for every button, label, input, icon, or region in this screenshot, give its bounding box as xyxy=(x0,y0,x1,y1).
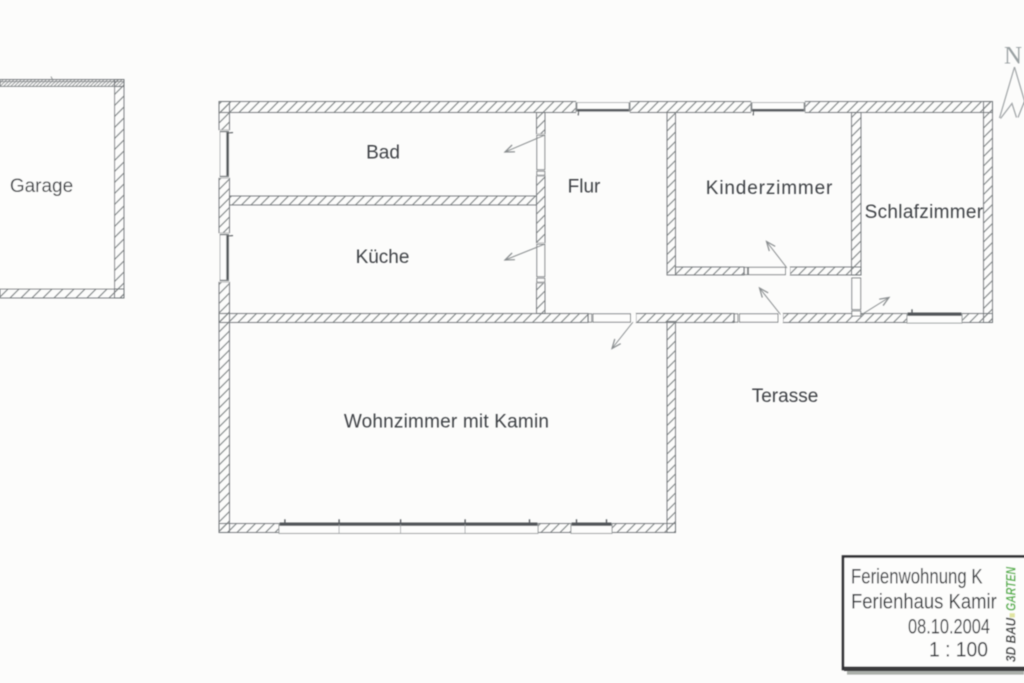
svg-text:N: N xyxy=(1004,43,1022,70)
svg-text:Wohnzimmer mit Kamin: Wohnzimmer mit Kamin xyxy=(344,412,549,433)
svg-text:08.10.2004: 08.10.2004 xyxy=(908,615,990,638)
svg-text:Terasse: Terasse xyxy=(752,386,819,407)
svg-text:Flur: Flur xyxy=(568,177,601,198)
svg-text:Ferienwohnung K: Ferienwohnung K xyxy=(851,566,983,589)
svg-text:Bad: Bad xyxy=(366,143,400,164)
svg-text:1 : 100: 1 : 100 xyxy=(929,639,988,662)
svg-text:Ferienhaus Kamir: Ferienhaus Kamir xyxy=(851,590,997,613)
svg-text:Küche: Küche xyxy=(356,247,410,268)
svg-text:3D BAU: 3D BAU xyxy=(1003,617,1019,662)
svg-text:GARTEN: GARTEN xyxy=(1003,566,1019,611)
svg-text:Schlafzimmer: Schlafzimmer xyxy=(865,202,984,223)
svg-text:Kinderzimmer: Kinderzimmer xyxy=(706,178,833,199)
svg-text:Garage: Garage xyxy=(10,176,73,197)
svg-text:■: ■ xyxy=(1007,613,1019,618)
